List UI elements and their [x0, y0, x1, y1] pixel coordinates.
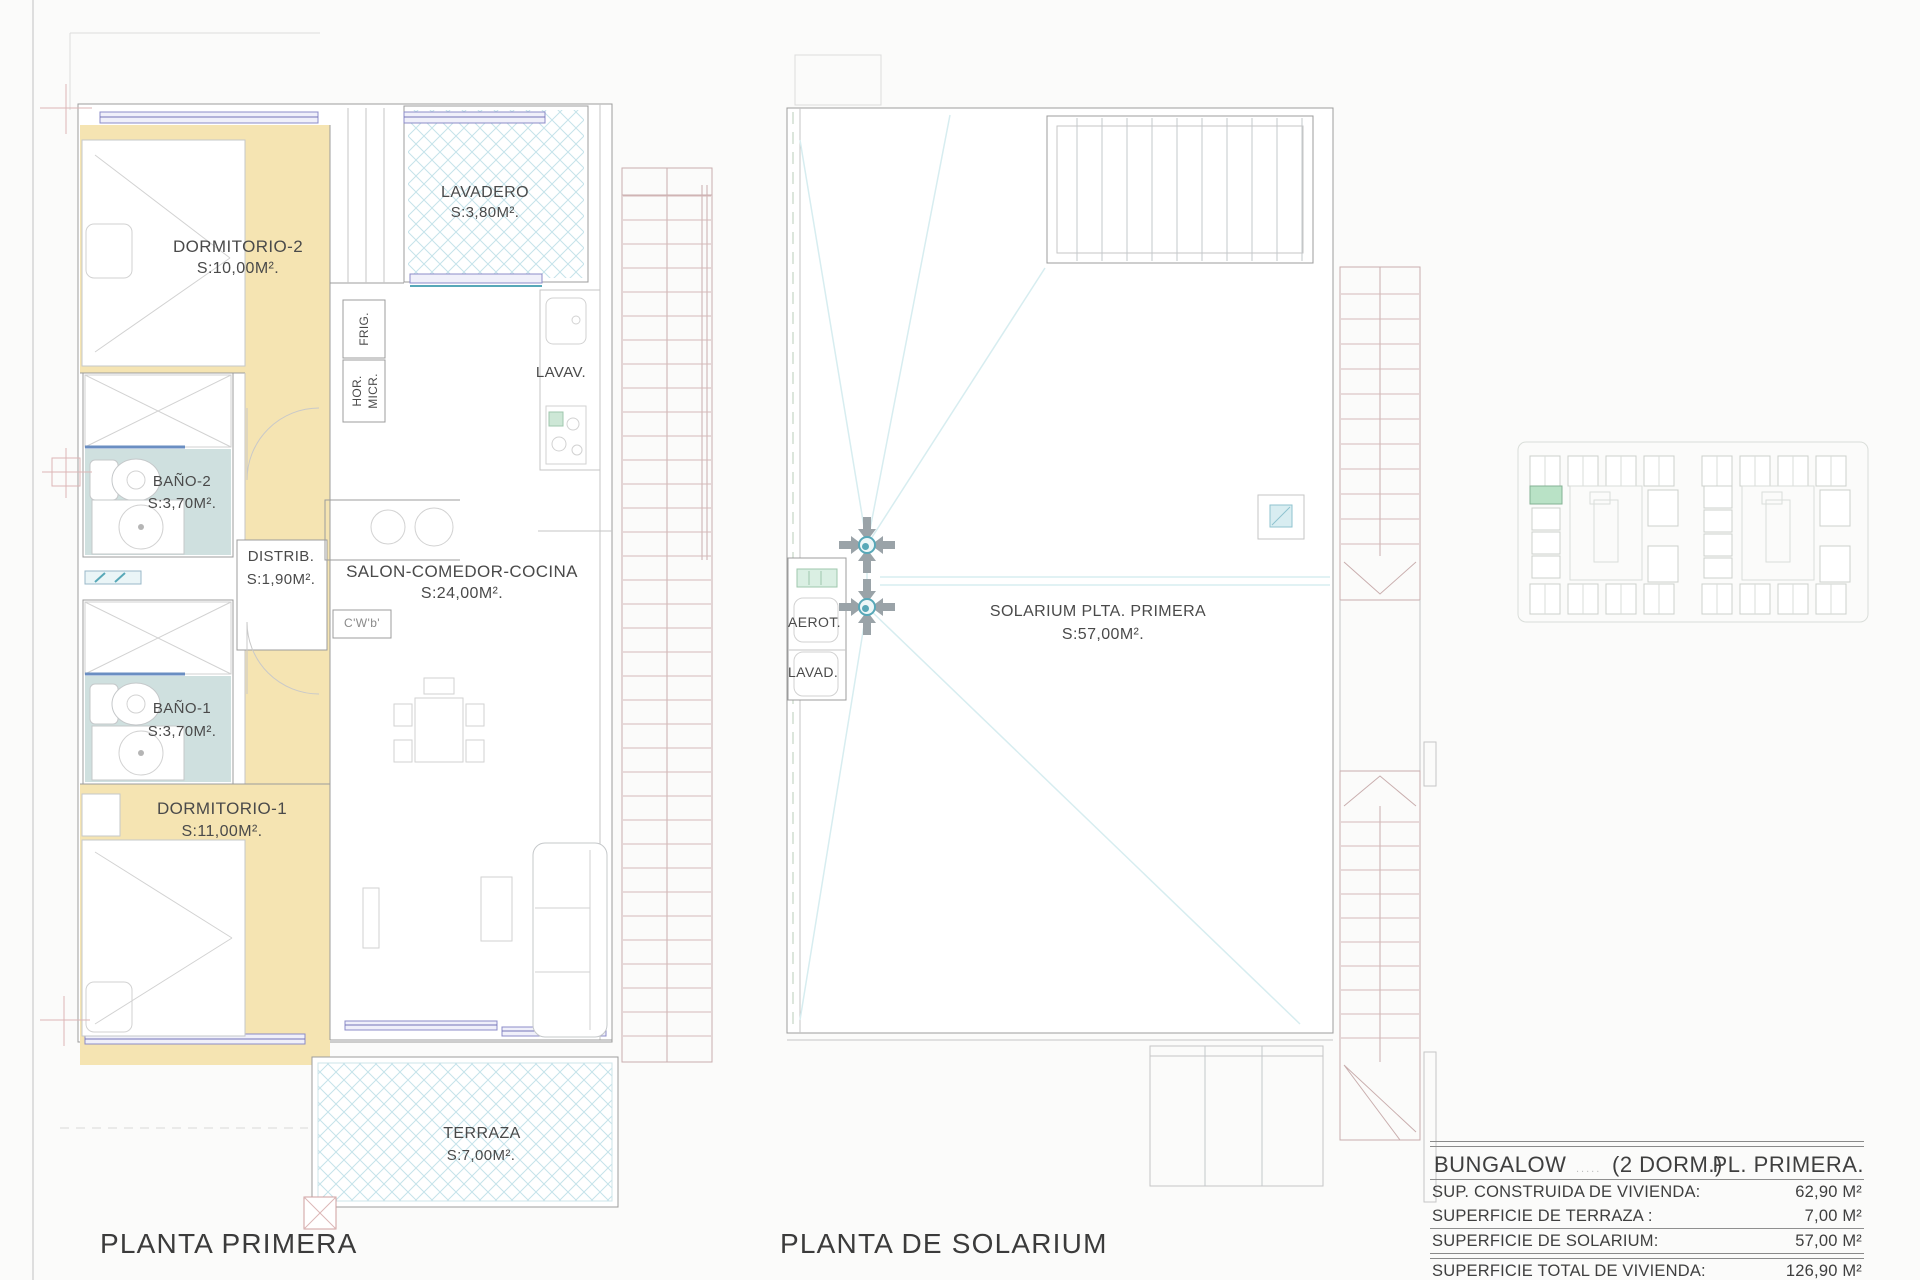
pergola-bottom-neighbour — [787, 1040, 1333, 1186]
summary-table: BUNGALOW ..... (2 DORM.) PL. PRIMERA. SU… — [1430, 1141, 1864, 1280]
room-area-distrib: S:1,90M². — [247, 571, 316, 589]
room-area-dormitorio1: S:11,00M². — [181, 822, 262, 841]
row-value: 62,90 M² — [1795, 1183, 1862, 1202]
summary-floor: PL. PRIMERA. — [1713, 1152, 1864, 1178]
room-label-dormitorio1: DORMITORIO-1 — [157, 799, 287, 819]
row-label: SUP. CONSTRUIDA DE VIVIENDA: — [1432, 1183, 1700, 1202]
room-area-terraza: S:7,00M². — [447, 1147, 516, 1165]
label-lavad: LAVAD. — [788, 664, 838, 681]
site-block-b — [1702, 456, 1850, 614]
label-cwb: C'W'b' — [344, 616, 380, 630]
room-area-salon: S:24,00M². — [421, 584, 503, 603]
label-lavav: LAVAV. — [536, 364, 586, 382]
room-label-dormitorio2: DORMITORIO-2 — [173, 237, 303, 257]
room-label-bano2: BAÑO-2 — [153, 473, 211, 491]
room-area-lavadero: S:3,80M². — [451, 204, 520, 222]
room-label-bano1: BAÑO-1 — [153, 700, 211, 718]
summary-product: BUNGALOW — [1434, 1152, 1566, 1178]
room-label-distrib: DISTRIB. — [248, 548, 315, 566]
row-label: SUPERFICIE DE TERRAZA : — [1432, 1207, 1653, 1226]
stairwell-right-lower — [1340, 600, 1420, 1140]
room-area-bano1: S:3,70M². — [148, 723, 217, 741]
table-row-constructed: SUP. CONSTRUIDA DE VIVIENDA: 62,90 M² — [1430, 1180, 1864, 1204]
room-area-dormitorio2: S:10,00M². — [197, 259, 279, 278]
room-area-solarium: S:57,00M². — [1062, 625, 1144, 644]
stairwell-right-upper — [1340, 267, 1420, 600]
terraza-linework — [60, 1057, 618, 1229]
row-label: SUPERFICIE DE SOLARIUM: — [1432, 1232, 1658, 1251]
floor-plan-sheet: DORMITORIO-2 S:10,00M². LAVADERO S:3,80M… — [0, 0, 1920, 1280]
row-value: 57,00 M² — [1795, 1232, 1862, 1251]
table-row-solarium: SUPERFICIE DE SOLARIUM: 57,00 M² — [1430, 1229, 1864, 1253]
room-label-salon: SALON-COMEDOR-COCINA — [346, 562, 578, 582]
site-unit-highlighted — [1530, 486, 1562, 504]
plan-linework — [0, 0, 1920, 1280]
label-hor: HOR. — [350, 375, 364, 406]
left-plan-title: PLANTA PRIMERA — [100, 1228, 357, 1260]
room-area-bano2: S:3,70M². — [148, 495, 217, 513]
left-plan-linework — [40, 84, 618, 1229]
site-block-a — [1530, 456, 1678, 614]
summary-dots: ..... — [1576, 1163, 1601, 1175]
row-value: 126,90 M² — [1786, 1262, 1862, 1280]
table-header: BUNGALOW ..... (2 DORM.) PL. PRIMERA. — [1430, 1147, 1864, 1179]
table-row-total: SUPERFICIE TOTAL DE VIVIENDA: 126,90 M² — [1430, 1259, 1864, 1280]
label-micr: MICR. — [366, 373, 380, 409]
room-label-terraza: TERRAZA — [443, 1124, 520, 1143]
label-frig: FRIG. — [357, 312, 371, 346]
site-key-plan — [1518, 442, 1868, 622]
row-value: 7,00 M² — [1805, 1207, 1862, 1226]
row-label: SUPERFICIE TOTAL DE VIVIENDA: — [1432, 1262, 1706, 1280]
table-row-terraza: SUPERFICIE DE TERRAZA : 7,00 M² — [1430, 1204, 1864, 1228]
stairwell-left — [622, 168, 712, 1062]
right-plan-title: PLANTA DE SOLARIUM — [780, 1228, 1108, 1260]
room-label-lavadero: LAVADERO — [441, 183, 529, 202]
label-aerot: AEROT. — [788, 614, 841, 631]
room-label-solarium: SOLARIUM PLTA. PRIMERA — [990, 602, 1206, 621]
summary-type: (2 DORM.) — [1612, 1152, 1723, 1178]
